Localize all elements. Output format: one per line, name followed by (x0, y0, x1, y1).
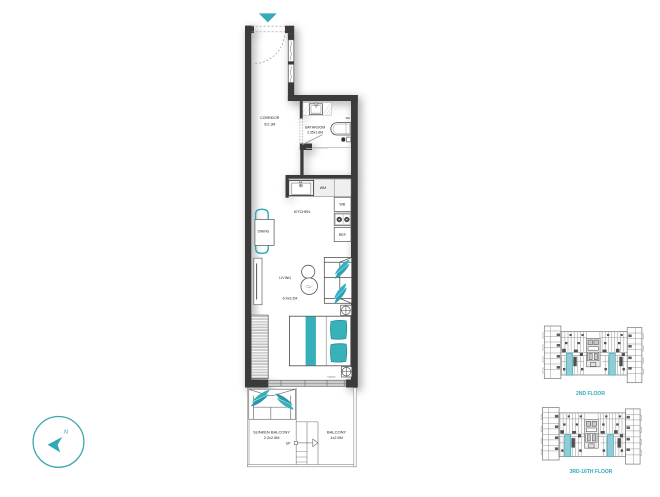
svg-text:REF.: REF. (339, 233, 347, 237)
svg-text:5x1.3M: 5x1.3M (264, 122, 275, 126)
svg-text:2.35x1.6M: 2.35x1.6M (307, 130, 323, 134)
svg-text:WH: WH (346, 116, 350, 120)
svg-text:1x2.5M: 1x2.5M (330, 436, 342, 440)
svg-text:2.2x2.5M: 2.2x2.5M (264, 436, 280, 440)
svg-text:UP: UP (286, 441, 291, 445)
svg-text:LIVING: LIVING (279, 276, 291, 280)
svg-text:2ND FLOOR: 2ND FLOOR (576, 391, 605, 397)
svg-text:WB: WB (339, 203, 345, 207)
svg-text:KITCHEN: KITCHEN (294, 210, 311, 214)
svg-text:DINING: DINING (258, 230, 270, 234)
svg-text:SUNKEN BALCONY: SUNKEN BALCONY (253, 429, 290, 434)
svg-text:6.4x3.2M: 6.4x3.2M (283, 297, 298, 301)
svg-text:BALCONY: BALCONY (327, 429, 346, 434)
svg-text:3RD-16TH FLOOR: 3RD-16TH FLOOR (570, 469, 613, 475)
svg-text:BATHROOM: BATHROOM (305, 125, 325, 129)
svg-text:CORRIDOR: CORRIDOR (260, 116, 280, 120)
svg-text:WM: WM (320, 186, 326, 190)
